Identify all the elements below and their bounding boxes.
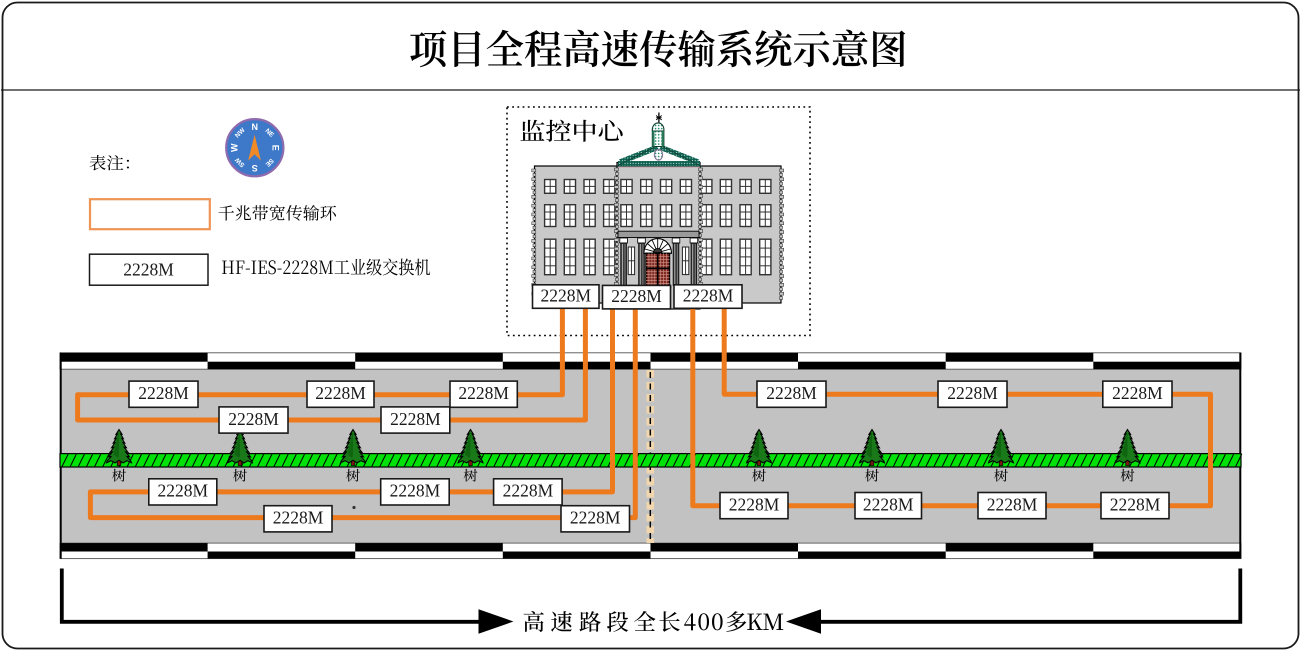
svg-text:2228M: 2228M xyxy=(503,481,554,501)
svg-text:S: S xyxy=(252,163,258,173)
svg-text:2228M: 2228M xyxy=(123,259,174,279)
svg-text:2228M: 2228M xyxy=(541,285,592,305)
svg-text:2228M: 2228M xyxy=(729,494,780,514)
svg-text:2228M: 2228M xyxy=(458,383,509,403)
svg-text:2228M: 2228M xyxy=(158,481,209,501)
svg-text:2228M: 2228M xyxy=(987,494,1038,514)
svg-text:2228M: 2228M xyxy=(273,508,324,528)
svg-text:2228M: 2228M xyxy=(1112,383,1163,403)
svg-text:E: E xyxy=(270,145,280,151)
svg-text:2228M: 2228M xyxy=(611,286,662,306)
svg-text:2228M: 2228M xyxy=(390,481,441,501)
svg-text:2228M: 2228M xyxy=(315,383,366,403)
svg-text:2228M: 2228M xyxy=(766,383,817,403)
svg-text:2228M: 2228M xyxy=(863,494,914,514)
svg-text:2228M: 2228M xyxy=(138,383,189,403)
svg-text:2228M: 2228M xyxy=(1110,494,1161,514)
svg-text:W: W xyxy=(229,143,239,152)
svg-text:N: N xyxy=(252,122,258,132)
svg-text:2228M: 2228M xyxy=(947,383,998,403)
svg-text:2228M: 2228M xyxy=(683,285,734,305)
svg-text:2228M: 2228M xyxy=(390,409,441,429)
svg-text:2228M: 2228M xyxy=(570,508,621,528)
svg-text:2228M: 2228M xyxy=(228,409,279,429)
